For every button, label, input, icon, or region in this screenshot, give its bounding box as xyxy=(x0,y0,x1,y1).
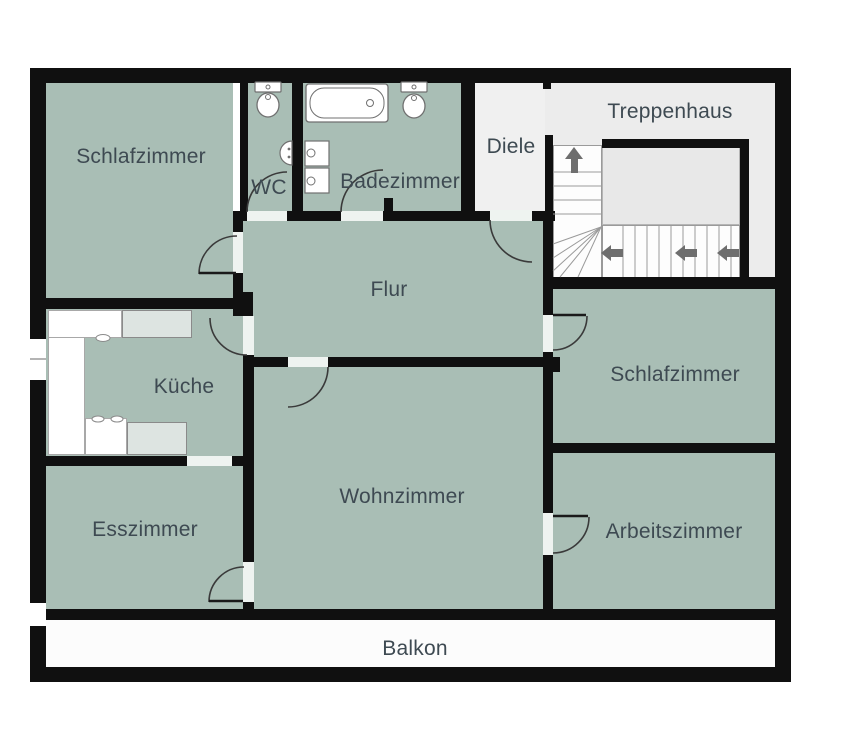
stair-landing xyxy=(602,146,740,225)
wall-stub-bad xyxy=(384,198,393,211)
wall-bad-diele xyxy=(461,83,475,211)
floor-plan: SchlafzimmerWCBadezimmerDieleTreppenhaus… xyxy=(0,0,849,744)
kitchen-counter-bottom xyxy=(85,418,127,455)
gap-diele-door xyxy=(490,210,532,221)
room-label-wohnzimmer: Wohnzimmer xyxy=(339,485,464,509)
wall-treppenhaus-bottom xyxy=(545,277,775,289)
gap-schlafzimmer-r-door xyxy=(543,315,553,352)
room-label-kueche: Küche xyxy=(154,375,215,399)
room-label-treppenhaus: Treppenhaus xyxy=(607,100,732,124)
room-label-schlafzimmer-r: Schlafzimmer xyxy=(610,363,740,387)
stairs-left-arrow-1-shaft xyxy=(611,249,623,257)
wall-wohnzimmer-arbeitszimmer xyxy=(543,367,553,609)
gap-arbeitszimmer-door xyxy=(543,513,553,555)
stairs-left-arrow-3-head xyxy=(717,245,727,261)
room-label-diele: Diele xyxy=(487,135,536,159)
kitchen-appliance-bottom xyxy=(127,422,187,455)
room-label-balkon: Balkon xyxy=(382,637,447,661)
wall-main-bottom xyxy=(46,609,775,620)
stairs-up-arrow-shaft xyxy=(571,159,578,173)
wall-stub-schlafzimmer-r xyxy=(553,357,560,372)
wall-stub-treppenhaus-top xyxy=(543,83,551,89)
kitchen-counter-top xyxy=(48,310,122,338)
gap-kueche-esszimmer xyxy=(187,456,232,466)
wall-landing-top xyxy=(602,139,748,148)
stairs-left-arrow-2-head xyxy=(675,245,685,261)
gap-esszimmer-door xyxy=(243,562,254,602)
wall-schlafzimmer-kueche xyxy=(30,298,233,309)
stairs-left-arrow-3-shaft xyxy=(727,249,739,257)
wall-outer-right xyxy=(775,68,791,682)
room-label-wc: WC xyxy=(251,176,286,200)
kitchen-appliance-top xyxy=(122,310,192,338)
room-label-esszimmer: Esszimmer xyxy=(92,518,198,542)
gap-schlafzimmer-tl-door xyxy=(233,232,243,273)
gap-kueche-window xyxy=(30,339,46,380)
gap-bad-door xyxy=(341,211,383,221)
room-label-schlafzimmer-tl: Schlafzimmer xyxy=(76,145,206,169)
gap-balkon-left xyxy=(30,603,46,626)
gap-flur-wohnzimmer-door xyxy=(288,357,328,367)
wall-schlafzimmer-arbeitszimmer xyxy=(553,443,775,453)
stairs-up-arrow-head xyxy=(565,147,583,159)
wall-outer-top xyxy=(30,68,791,83)
gap-wc-door xyxy=(247,211,287,221)
wall-corner-block xyxy=(233,292,253,316)
stairs-left-arrow-2-shaft xyxy=(685,249,697,257)
wall-landing-right xyxy=(740,139,749,289)
room-label-arbeitszimmer: Arbeitszimmer xyxy=(606,520,743,544)
room-schlafzimmer-tl xyxy=(46,83,233,298)
room-label-badezimmer: Badezimmer xyxy=(340,170,460,194)
wall-wc-bad xyxy=(292,83,303,213)
gap-kueche-door xyxy=(243,316,254,355)
wall-schlafzimmer-wc xyxy=(240,83,248,213)
wall-outer-bottom xyxy=(30,667,791,682)
stairs-left-arrow-1-head xyxy=(601,245,611,261)
room-label-flur: Flur xyxy=(371,278,408,302)
